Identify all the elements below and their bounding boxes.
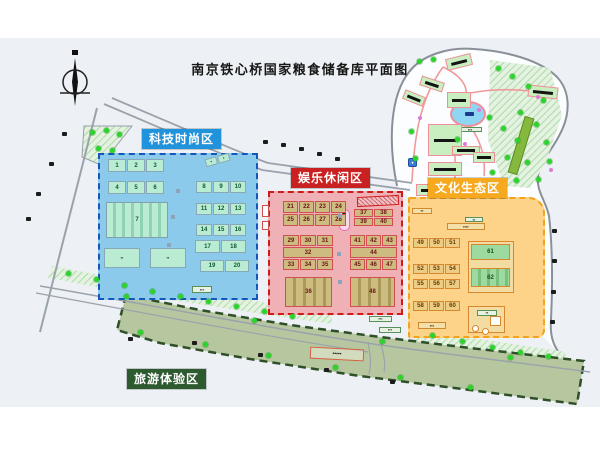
- tree-icon: [501, 126, 506, 131]
- lane-label-mark: [338, 214, 342, 218]
- building-label-bar: [477, 156, 491, 159]
- building: 34: [300, 259, 316, 270]
- map-label-chip: ▪▪▪: [418, 322, 446, 329]
- tree-icon: [90, 130, 95, 135]
- building: 47: [382, 259, 397, 270]
- building-group-ent: 37383940: [354, 209, 393, 226]
- map-label-chip: [482, 328, 489, 335]
- building: 23: [315, 201, 330, 213]
- tree-icon: [544, 140, 549, 145]
- building: 46: [366, 259, 381, 270]
- tree-icon: [104, 128, 109, 133]
- tree-icon: [430, 333, 435, 338]
- lane-label-mark: [171, 215, 175, 219]
- tree-icon: [541, 98, 546, 103]
- building: 33: [283, 259, 299, 270]
- building: 42: [366, 235, 381, 246]
- building-group-ent: 29303132333435: [283, 235, 333, 270]
- building: 26: [299, 214, 314, 226]
- flower-icon: [418, 116, 422, 120]
- map-label-chip: ▪▪▪: [369, 316, 392, 322]
- building-group-tech: 7: [106, 202, 168, 238]
- tree-icon: [262, 309, 267, 314]
- building: 31: [317, 235, 333, 246]
- tree-icon: [234, 304, 239, 309]
- page-title: 南京铁心桥国家粮食储备库平面图: [0, 59, 600, 78]
- tree-icon: [536, 177, 541, 182]
- building: ▪▪: [104, 248, 140, 268]
- building: 59: [429, 301, 444, 311]
- building: 54: [445, 264, 460, 274]
- building: 55: [413, 279, 428, 289]
- building: 50: [429, 238, 444, 248]
- park-building: [428, 162, 462, 176]
- building-group-tech: 456: [108, 181, 164, 194]
- building-group-cul: 585960: [413, 301, 460, 311]
- building-group-cul: 495051: [413, 238, 460, 248]
- building: 44: [350, 247, 397, 258]
- tree-icon: [178, 294, 183, 299]
- building: 53: [429, 264, 444, 274]
- building: 11: [196, 203, 212, 215]
- building: 5: [127, 181, 145, 194]
- tree-icon: [518, 110, 523, 115]
- tree-icon: [468, 385, 473, 390]
- road-label-glyph: [552, 259, 557, 263]
- road-label-glyph: [299, 147, 304, 151]
- building: 10: [230, 181, 246, 193]
- road-label-glyph: [49, 162, 54, 166]
- building: 43: [382, 235, 397, 246]
- zone-label-tech: 科技时尚区: [142, 129, 221, 149]
- building: 29: [283, 235, 299, 246]
- zone-label-tourism: 旅游体验区: [127, 369, 206, 389]
- tree-icon: [534, 122, 539, 127]
- building-group-ent: 41424344454647: [350, 235, 397, 270]
- building-group-tech: 8910: [196, 181, 246, 193]
- building: 41: [350, 235, 365, 246]
- building: 9: [213, 181, 229, 193]
- building-label-bar: [424, 80, 439, 87]
- building: 15: [213, 224, 229, 236]
- building-group-tech: 1920: [200, 260, 249, 272]
- building: 58: [413, 301, 428, 311]
- map-label-chip: ▪▪▪: [192, 286, 212, 293]
- building: 48: [350, 277, 395, 307]
- tree-icon: [117, 132, 122, 137]
- building: 24: [331, 201, 346, 213]
- building-label-bar: [533, 90, 552, 95]
- pond-boat-icon: [465, 112, 474, 116]
- building-group-ent: 36: [285, 277, 332, 307]
- building: 7: [106, 202, 168, 238]
- building: 13: [230, 203, 246, 215]
- building: ▪▪: [150, 248, 186, 268]
- tree-icon: [333, 365, 338, 370]
- tree-icon: [252, 318, 257, 323]
- tree-icon: [525, 160, 530, 165]
- building-label-bar: [434, 168, 456, 171]
- tree-icon: [547, 159, 552, 164]
- road-label-glyph: [281, 143, 286, 147]
- building-group-tech: 141516: [196, 224, 246, 236]
- building: 22: [299, 201, 314, 213]
- building-label-bar: [452, 99, 467, 102]
- tree-icon: [526, 84, 531, 89]
- site-plan-page: 1234567▪▪▪▪▪▪891011121314151617181920212…: [0, 0, 600, 450]
- building: 60: [445, 301, 460, 311]
- building: 17: [195, 240, 220, 253]
- lane-label-mark: [338, 280, 342, 284]
- building: 16: [230, 224, 246, 236]
- tree-icon: [505, 155, 510, 160]
- building: 37: [354, 209, 373, 217]
- tree-icon: [203, 342, 208, 347]
- map-label-chip: [472, 325, 479, 332]
- building-group-ent: 2122232425262728: [283, 201, 346, 226]
- building: 52: [413, 264, 428, 274]
- building: 20: [225, 260, 249, 272]
- tree-icon: [487, 115, 492, 120]
- building: 3: [146, 159, 164, 172]
- road-label-glyph: [26, 217, 31, 221]
- lane-label-mark: [337, 252, 341, 256]
- road-label-glyph: [317, 152, 322, 156]
- map-label-chip: ▪▪▪▪: [447, 223, 485, 230]
- road-label-glyph: [550, 320, 555, 324]
- tree-icon: [514, 178, 519, 183]
- building-group-cul: 62: [471, 268, 510, 287]
- building: 32: [283, 247, 333, 258]
- road-label-glyph: [551, 290, 556, 294]
- road-label-glyph: [258, 353, 263, 357]
- road-label-glyph: [62, 132, 67, 136]
- tree-icon: [96, 146, 101, 151]
- building: 49: [413, 238, 428, 248]
- tree-icon: [413, 156, 418, 161]
- building: 21: [283, 201, 298, 213]
- building: 8: [196, 181, 212, 193]
- building: 45: [350, 259, 365, 270]
- building: 14: [196, 224, 212, 236]
- park-building: [447, 92, 471, 108]
- tree-icon: [66, 271, 71, 276]
- building: 36: [285, 277, 332, 307]
- road-label-glyph: [324, 368, 329, 372]
- building-group-tech: ▪▪: [104, 248, 140, 268]
- building-label-bar: [407, 94, 421, 102]
- tree-icon: [460, 339, 465, 344]
- road-label-glyph: [335, 157, 340, 161]
- building: 19: [200, 260, 224, 272]
- tree-icon: [380, 339, 385, 344]
- tree-icon: [290, 314, 295, 319]
- building-group-tech: 1718: [195, 240, 246, 253]
- map-label-chip: [262, 221, 269, 230]
- building: 62: [471, 268, 510, 287]
- tree-icon: [409, 129, 414, 134]
- tree-icon: [124, 294, 129, 299]
- building: 51: [445, 238, 460, 248]
- tree-icon: [266, 353, 271, 358]
- building: 25: [283, 214, 298, 226]
- tree-icon: [490, 345, 495, 350]
- building: 27: [315, 214, 330, 226]
- building-group-tech: 111213: [196, 203, 246, 215]
- building: 38: [374, 209, 393, 217]
- tree-icon: [206, 299, 211, 304]
- tree-icon: [398, 375, 403, 380]
- map-label-chip: [490, 316, 501, 326]
- building-group-cul: 555657: [413, 279, 460, 289]
- tree-icon: [455, 137, 460, 142]
- lane-label-mark: [176, 189, 180, 193]
- lane-label-mark: [167, 243, 171, 247]
- tree-icon: [518, 350, 523, 355]
- tree-icon: [490, 170, 495, 175]
- building: 30: [300, 235, 316, 246]
- tree-icon: [515, 138, 520, 143]
- building-group-tech: ▪▪: [150, 248, 186, 268]
- building: 18: [221, 240, 246, 253]
- flower-icon: [536, 95, 540, 99]
- building: 39: [354, 218, 373, 226]
- road-label-glyph: [36, 192, 41, 196]
- building: 12: [213, 203, 229, 215]
- building: 61: [471, 244, 510, 260]
- road-label-glyph: [128, 337, 133, 341]
- tree-icon: [110, 148, 115, 153]
- map-label-chip: ▪▪: [465, 217, 483, 222]
- zone-label-entertainment: 娱乐休闲区: [291, 168, 370, 188]
- tree-icon: [150, 289, 155, 294]
- road-label-glyph: [263, 140, 268, 144]
- building: 1: [108, 159, 126, 172]
- tree-icon: [546, 354, 551, 359]
- tree-icon: [122, 283, 127, 288]
- building: 2: [127, 159, 145, 172]
- park-building: [473, 152, 495, 163]
- tree-icon: [508, 355, 513, 360]
- road-label-glyph: [552, 229, 557, 233]
- road-label-glyph: [192, 341, 197, 345]
- flower-icon: [549, 168, 553, 172]
- building-group-cul: 525354: [413, 264, 460, 274]
- road-label-glyph: [390, 380, 395, 384]
- building: 40: [374, 218, 393, 226]
- building: 35: [317, 259, 333, 270]
- map-label-chip: [262, 205, 269, 217]
- flower-icon: [477, 108, 481, 112]
- building: 6: [146, 181, 164, 194]
- tree-icon: [94, 277, 99, 282]
- zone-label-culture: 文化生态区: [428, 178, 507, 198]
- building-label-bar: [434, 139, 456, 142]
- building-group-cul: 61: [471, 244, 510, 260]
- building: 57: [445, 279, 460, 289]
- map-label-chip: ▪▪▪: [379, 327, 401, 333]
- flower-icon: [463, 142, 467, 146]
- building-group-tech: 123: [108, 159, 164, 172]
- building-group-ent: 48: [350, 277, 395, 307]
- map-label-chip: ▪▪: [412, 208, 432, 214]
- tree-icon: [138, 330, 143, 335]
- building: 56: [429, 279, 444, 289]
- building: 4: [108, 181, 126, 194]
